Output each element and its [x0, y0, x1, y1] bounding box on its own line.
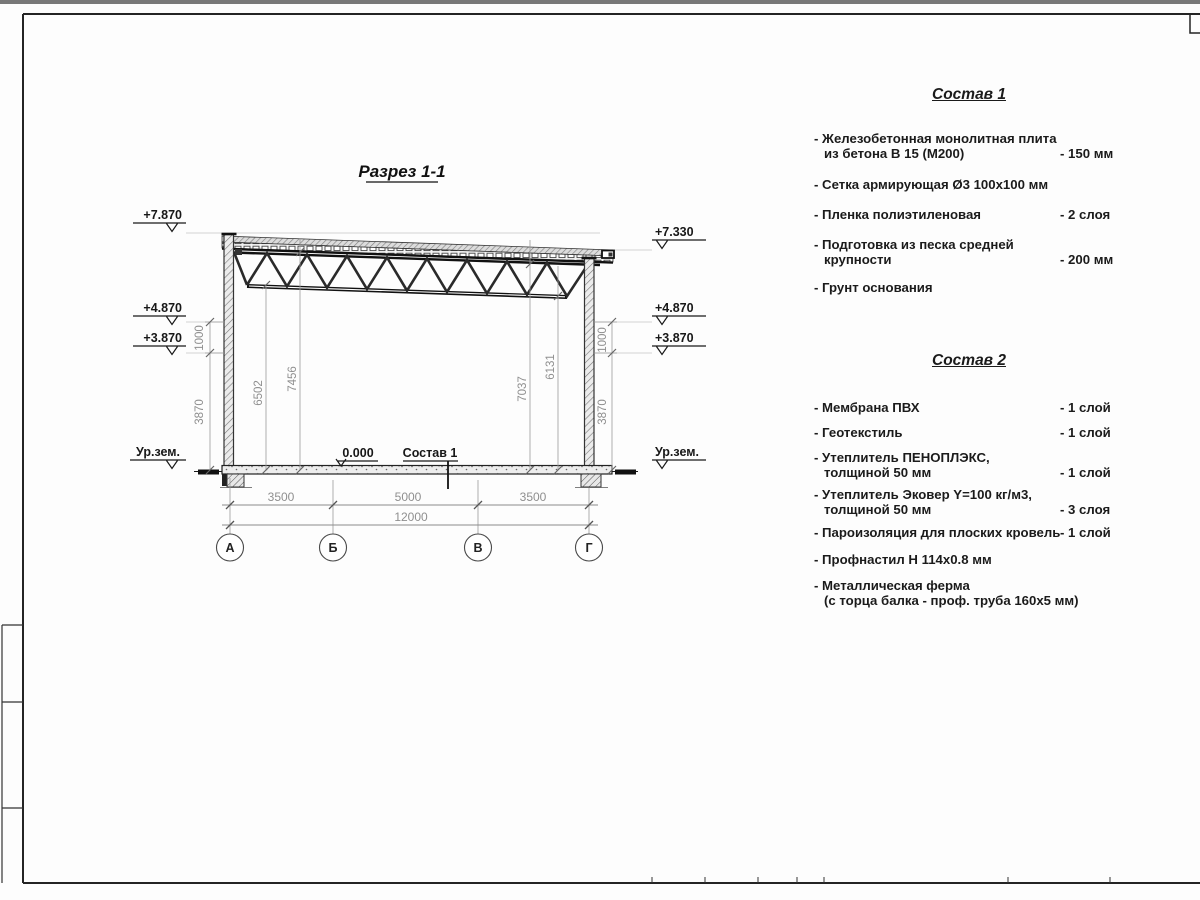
- list-item: - Грунт основания: [806, 280, 1132, 295]
- truss-end-post-left: [234, 252, 247, 285]
- dim-7037: 7037: [517, 376, 529, 402]
- axis-bubble-a: А: [225, 541, 234, 555]
- item-text: - Геотекстиль: [814, 425, 903, 440]
- dim-7456: 7456: [287, 366, 299, 392]
- list-item: - Подготовка из песка средней крупности …: [806, 237, 1132, 267]
- item-value: - 150 мм: [1060, 146, 1113, 161]
- column-right: [585, 259, 595, 471]
- side-dimension-right: 1000 3870: [594, 318, 617, 474]
- item-text: - Железобетонная монолитная плита: [814, 131, 1057, 146]
- item-text-line2: (с торца балка - проф. труба 160х5 мм): [814, 593, 1132, 608]
- axis-bubble-v: В: [473, 541, 482, 555]
- item-value: - 2 слоя: [1060, 207, 1110, 222]
- sostav1-title: Состав 1: [806, 87, 1132, 102]
- floor-composition-text: Состав 1: [403, 446, 458, 460]
- side-dimension-left: 1000 3870: [194, 318, 224, 474]
- item-text: - Грунт основания: [814, 280, 933, 295]
- list-item: - Утеплитель Эковер Y=100 кг/м3, толщино…: [806, 487, 1132, 517]
- dim-3500-left: 3500: [268, 490, 295, 504]
- item-text: - Утеплитель ПЕНОПЛЭКС,: [814, 450, 990, 465]
- column-left: [224, 235, 234, 471]
- eave-end-cap-core: [609, 253, 613, 257]
- bottom-dimensions: 3500 5000 3500 12000: [222, 478, 598, 534]
- sostav2-panel: Состав 2 - Мембрана ПВХ - 1 слой - Геоте…: [806, 347, 1132, 617]
- dim-3870-left: 3870: [194, 399, 206, 425]
- drawing-sheet: Разрез 1-1: [0, 0, 1200, 900]
- foundation-pad-right: [581, 474, 601, 487]
- floor-and-ground: [194, 466, 638, 488]
- dim-1000-left: 1000: [194, 325, 206, 351]
- list-item: - Металлическая ферма (с торца балка - п…: [806, 578, 1132, 608]
- footing-stub-left: [222, 474, 227, 486]
- item-value: - 200 мм: [1060, 252, 1113, 267]
- list-item: - Железобетонная монолитная плита из бет…: [806, 131, 1132, 161]
- elevation-7330: +7.330: [655, 225, 694, 239]
- item-text: - Мембрана ПВХ: [814, 400, 920, 415]
- ground-level-label-right: Ур.зем.: [655, 445, 699, 459]
- sostav2-title: Состав 2: [806, 353, 1132, 368]
- item-text: - Пароизоляция для плоских кровель: [814, 525, 1060, 540]
- sostav1-panel: Состав 1 - Железобетонная монолитная пли…: [806, 84, 1132, 324]
- item-text: - Утеплитель Эковер Y=100 кг/м3,: [814, 487, 1032, 502]
- item-value: - 1 слой: [1060, 525, 1111, 540]
- truss-bearing-left: [235, 249, 242, 255]
- ground-level-label-left: Ур.зем.: [136, 445, 180, 459]
- item-value: - 1 слой: [1060, 465, 1111, 480]
- item-text: - Профнастил Н 114х0.8 мм: [814, 552, 992, 567]
- dim-1000-right: 1000: [597, 327, 609, 353]
- axis-bubble-g: Г: [585, 541, 592, 555]
- left-margin-boxes: [2, 625, 23, 883]
- elevation-3870-left: +3.870: [143, 331, 182, 345]
- list-item: - Мембрана ПВХ - 1 слой: [806, 400, 1132, 415]
- elevation-marks-right: +7.330 +4.870 +3.870 Ур.зем.: [652, 225, 706, 469]
- scan-artifact-strip: [0, 0, 1200, 4]
- dim-3870-right: 3870: [597, 399, 609, 425]
- list-item: - Пленка полиэтиленовая - 2 слоя: [806, 207, 1132, 222]
- ground-marker-right: [615, 470, 636, 475]
- dim-3500-right: 3500: [520, 490, 547, 504]
- list-item: - Профнастил Н 114х0.8 мм: [806, 552, 1132, 567]
- dim-5000: 5000: [395, 490, 422, 504]
- foundation-pad-left: [227, 474, 244, 487]
- elevation-4870-right: +4.870: [655, 301, 694, 315]
- list-item: - Утеплитель ПЕНОПЛЭКС, толщиной 50 мм -…: [806, 450, 1132, 480]
- item-value: - 1 слой: [1060, 400, 1111, 415]
- list-item: - Геотекстиль - 1 слой: [806, 425, 1132, 440]
- item-text: - Пленка полиэтиленовая: [814, 207, 981, 222]
- dim-6131: 6131: [545, 354, 557, 380]
- dim-12000: 12000: [394, 510, 428, 524]
- axis-bubble-b: Б: [329, 541, 338, 555]
- floor-slab: [222, 466, 612, 475]
- list-item: - Сетка армирующая Ø3 100х100 мм: [806, 177, 1132, 192]
- zero-level-text: 0.000: [342, 446, 373, 460]
- zero-level-mark: 0.000: [336, 446, 378, 466]
- item-text: - Сетка армирующая Ø3 100х100 мм: [814, 177, 1048, 192]
- elevation-marks-left: +7.870 +4.870 +3.870 Ур.зем.: [130, 208, 186, 469]
- item-text: - Подготовка из песка средней: [814, 237, 1014, 252]
- list-item: - Пароизоляция для плоских кровель - 1 с…: [806, 525, 1132, 540]
- elevation-3870-right: +3.870: [655, 331, 694, 345]
- elevation-4870-left: +4.870: [143, 301, 182, 315]
- dim-6502: 6502: [253, 380, 265, 406]
- section-title: Разрез 1-1: [358, 162, 445, 181]
- item-value: - 1 слой: [1060, 425, 1111, 440]
- item-text: - Металлическая ферма: [814, 578, 970, 593]
- item-value: - 3 слоя: [1060, 502, 1110, 517]
- axis-bubbles: А Б В Г: [217, 534, 603, 561]
- elevation-7870: +7.870: [143, 208, 182, 222]
